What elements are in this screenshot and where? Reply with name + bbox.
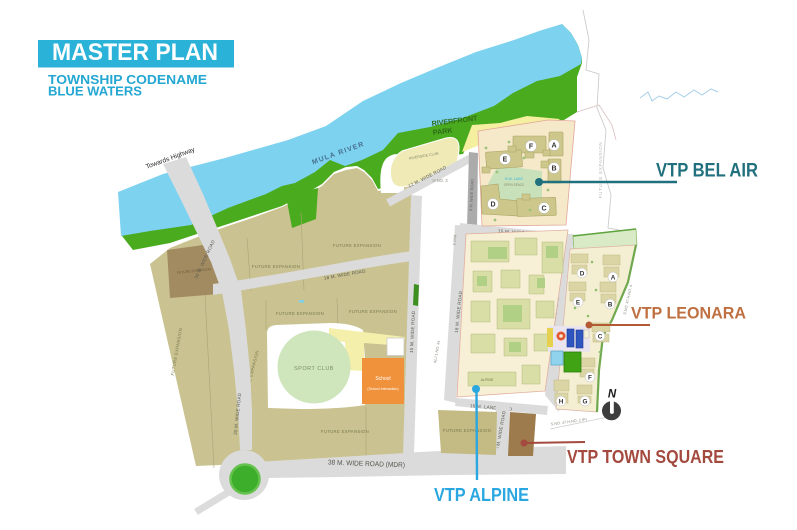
svg-text:D: D [580, 270, 585, 277]
svg-text:C: C [598, 333, 603, 340]
svg-text:E: E [503, 157, 508, 164]
svg-text:VTP ALPINE: VTP ALPINE [434, 484, 529, 505]
svg-text:FUTURE EXPANSION: FUTURE EXPANSION [333, 243, 381, 248]
svg-text:C: C [541, 206, 546, 213]
svg-text:(School Interaction): (School Interaction) [367, 387, 398, 391]
svg-text:FUTURE EXPANSION: FUTURE EXPANSION [443, 428, 491, 433]
svg-text:B.W. LAKE: B.W. LAKE [505, 177, 523, 181]
svg-text:H NO. 3: H NO. 3 [432, 178, 448, 183]
svg-text:A: A [551, 143, 556, 150]
svg-text:B: B [608, 301, 613, 308]
svg-text:B: B [551, 166, 556, 173]
svg-text:VTP TOWN SQUARE: VTP TOWN SQUARE [567, 446, 724, 467]
svg-text:SPORT CLUB: SPORT CLUB [294, 366, 334, 372]
svg-text:H: H [559, 398, 564, 405]
svg-text:BLUE WATERS: BLUE WATERS [48, 84, 142, 99]
svg-text:D: D [490, 202, 495, 209]
svg-text:FUTURE EXPANSION: FUTURE EXPANSION [349, 309, 397, 314]
svg-text:VTP BEL AIR: VTP BEL AIR [656, 161, 758, 182]
svg-text:MASTER PLAN: MASTER PLAN [52, 39, 218, 66]
svg-text:School: School [375, 376, 390, 382]
svg-text:N: N [608, 389, 617, 401]
svg-text:G: G [583, 398, 588, 405]
svg-text:FUTURE EXPANSION: FUTURE EXPANSION [321, 429, 369, 434]
svg-text:F: F [588, 374, 592, 381]
svg-text:OPEN SPACE: OPEN SPACE [504, 183, 525, 187]
svg-text:FUTURE EXPANSION: FUTURE EXPANSION [276, 311, 324, 316]
svg-text:FUTURE EXPANSION: FUTURE EXPANSION [598, 142, 603, 199]
svg-text:FUTURE EXPANSION: FUTURE EXPANSION [252, 264, 300, 269]
svg-text:A: A [611, 274, 616, 281]
svg-text:F: F [529, 144, 534, 151]
svg-text:ALPINE: ALPINE [481, 378, 494, 382]
svg-text:E: E [576, 299, 581, 306]
svg-text:VTP LEONARA: VTP LEONARA [631, 304, 746, 323]
